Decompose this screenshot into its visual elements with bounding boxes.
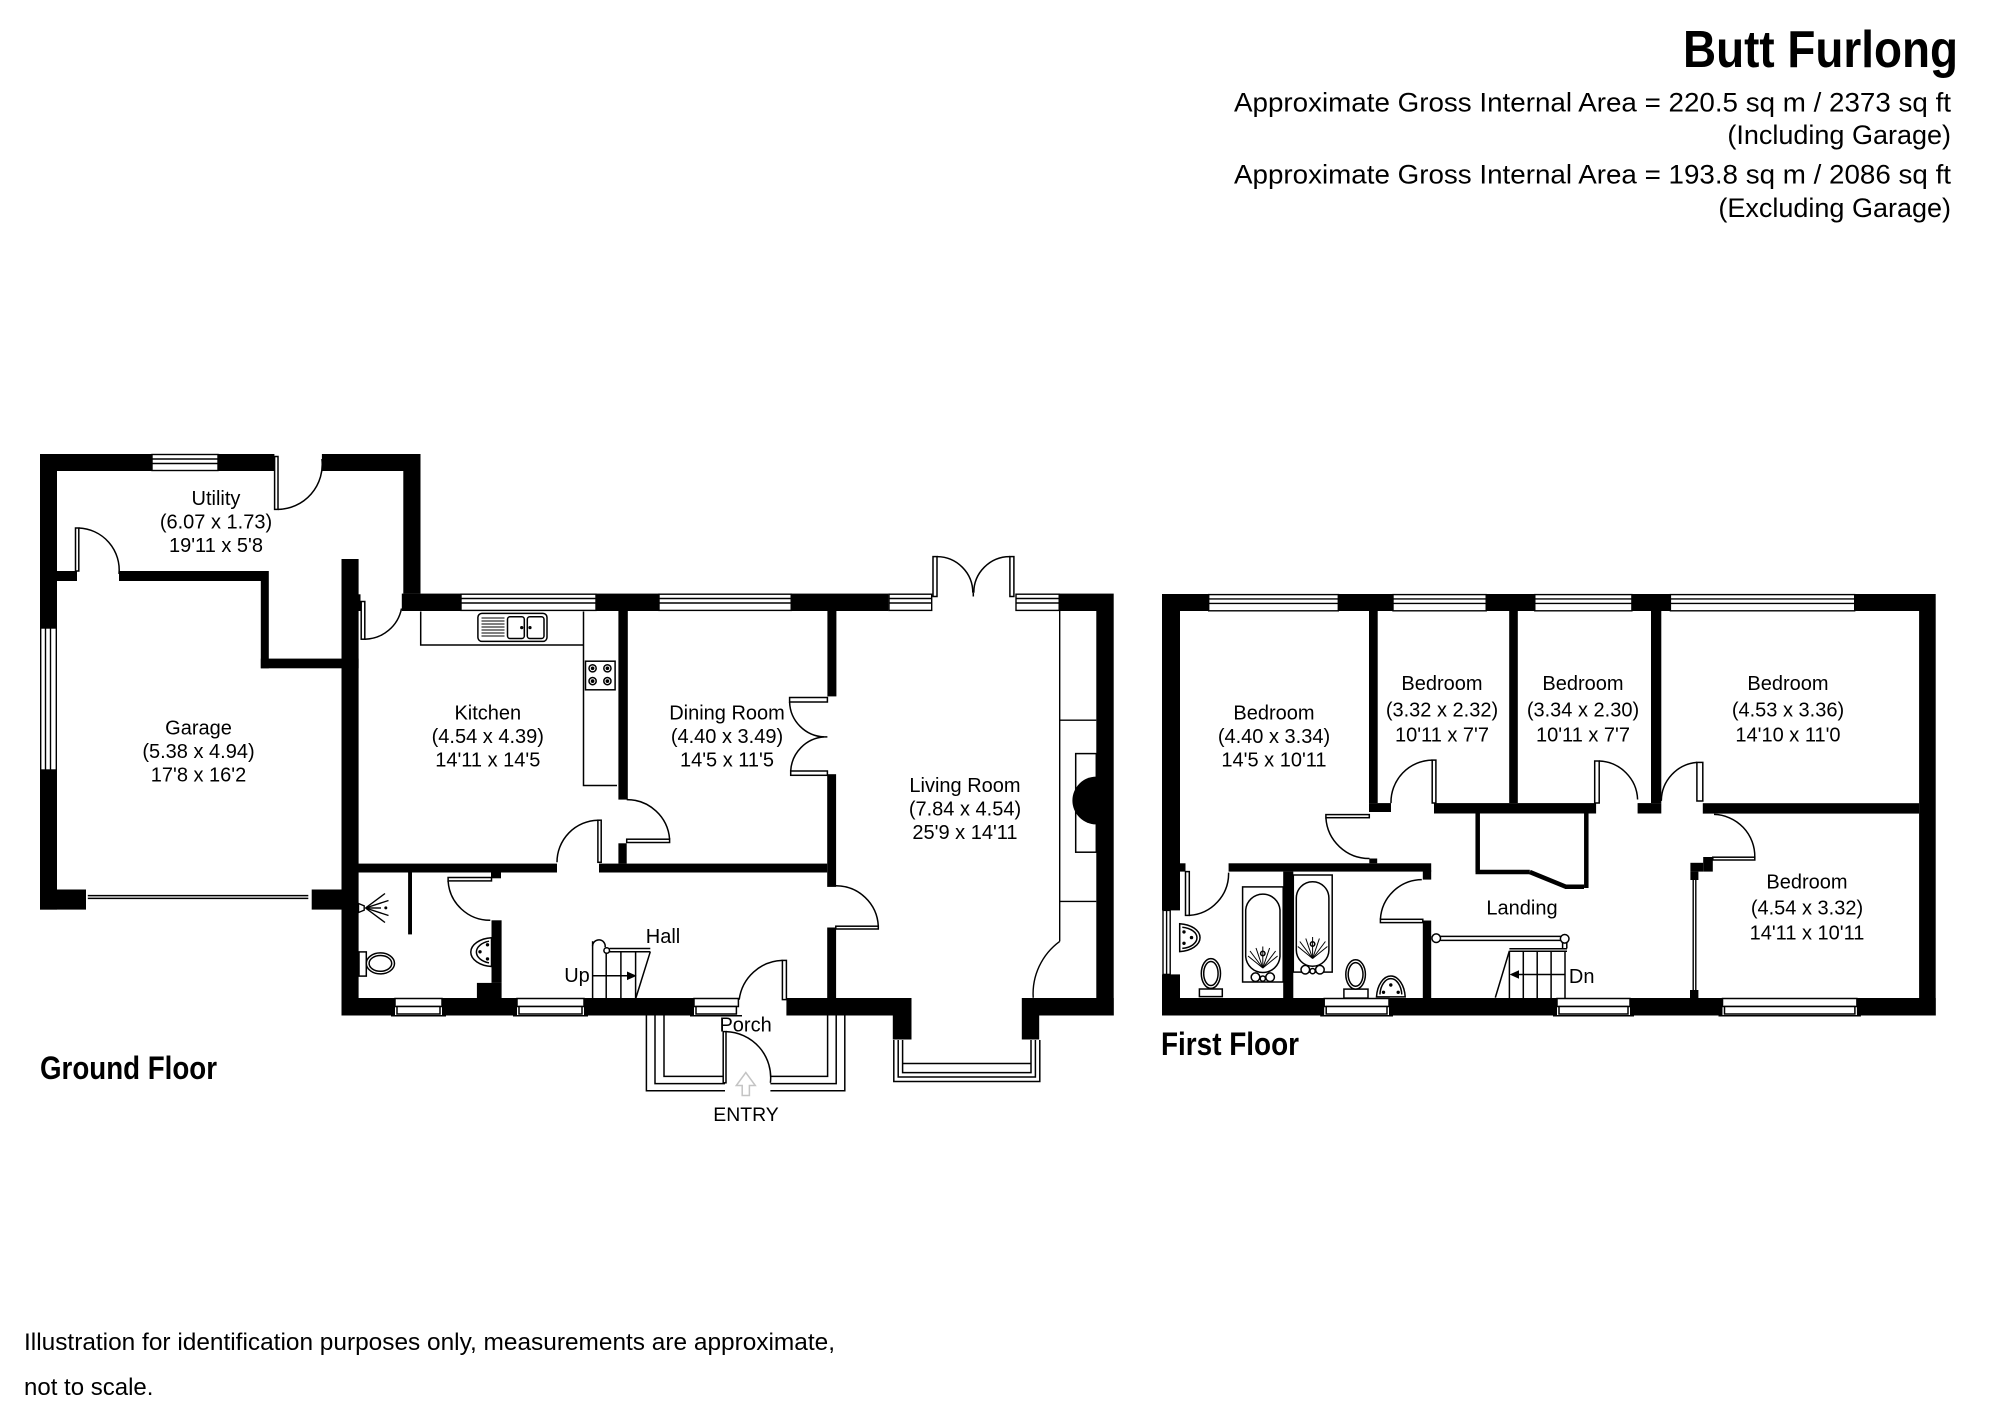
- svg-text:(3.32 x 2.32): (3.32 x 2.32): [1386, 700, 1498, 722]
- svg-text:Bedroom: Bedroom: [1401, 673, 1482, 695]
- svg-text:Porch: Porch: [719, 1015, 771, 1037]
- svg-text:Illustration for identificatio: Illustration for identification purposes…: [24, 1329, 835, 1356]
- svg-text:14'5 x 11'5: 14'5 x 11'5: [680, 749, 774, 771]
- svg-text:(Including Garage): (Including Garage): [1727, 120, 1951, 150]
- svg-text:Dining Room: Dining Room: [669, 702, 785, 724]
- svg-text:not to scale.: not to scale.: [24, 1374, 153, 1401]
- svg-text:(4.40 x 3.34): (4.40 x 3.34): [1218, 726, 1330, 748]
- svg-text:Ground Floor: Ground Floor: [40, 1050, 217, 1086]
- svg-text:19'11 x 5'8: 19'11 x 5'8: [169, 535, 263, 557]
- svg-text:(4.54 x 4.39): (4.54 x 4.39): [432, 726, 544, 748]
- svg-text:Butt Furlong: Butt Furlong: [1683, 21, 1958, 79]
- svg-text:Landing: Landing: [1486, 898, 1557, 920]
- svg-text:(Excluding Garage): (Excluding Garage): [1718, 193, 1951, 223]
- svg-text:Bedroom: Bedroom: [1766, 871, 1847, 893]
- svg-text:(3.34 x 2.30): (3.34 x 2.30): [1527, 700, 1639, 722]
- svg-text:Approximate Gross Internal Are: Approximate Gross Internal Area = 220.5 …: [1234, 88, 1952, 118]
- svg-text:(4.54 x 3.32): (4.54 x 3.32): [1751, 898, 1863, 920]
- svg-text:Utility: Utility: [192, 488, 241, 510]
- svg-text:Living Room: Living Room: [909, 775, 1020, 797]
- svg-text:ENTRY: ENTRY: [713, 1105, 779, 1126]
- svg-text:14'5 x 10'11: 14'5 x 10'11: [1221, 749, 1326, 771]
- svg-text:25'9 x 14'11: 25'9 x 14'11: [912, 822, 1017, 844]
- svg-text:Up: Up: [564, 965, 590, 987]
- svg-text:(5.38 x 4.94): (5.38 x 4.94): [142, 741, 254, 763]
- svg-text:Approximate Gross Internal Are: Approximate Gross Internal Area = 193.8 …: [1234, 160, 1952, 190]
- svg-text:10'11 x 7'7: 10'11 x 7'7: [1536, 725, 1630, 747]
- svg-text:14'10 x 11'0: 14'10 x 11'0: [1735, 725, 1840, 747]
- svg-text:Bedroom: Bedroom: [1747, 673, 1828, 695]
- svg-text:17'8 x 16'2: 17'8 x 16'2: [151, 765, 247, 787]
- svg-text:Garage: Garage: [165, 718, 232, 740]
- svg-text:(4.53 x 3.36): (4.53 x 3.36): [1732, 700, 1844, 722]
- svg-text:(6.07 x 1.73): (6.07 x 1.73): [160, 512, 272, 534]
- svg-text:(7.84 x 4.54): (7.84 x 4.54): [909, 799, 1021, 821]
- svg-text:Kitchen: Kitchen: [454, 702, 521, 724]
- svg-text:14'11 x 10'11: 14'11 x 10'11: [1750, 923, 1865, 945]
- svg-text:Bedroom: Bedroom: [1542, 673, 1623, 695]
- svg-text:Dn: Dn: [1569, 966, 1595, 988]
- svg-text:14'11 x 14'5: 14'11 x 14'5: [435, 749, 540, 771]
- svg-text:10'11 x 7'7: 10'11 x 7'7: [1395, 725, 1489, 747]
- svg-text:(4.40 x 3.49): (4.40 x 3.49): [671, 726, 783, 748]
- svg-text:First Floor: First Floor: [1161, 1026, 1299, 1062]
- svg-text:Bedroom: Bedroom: [1233, 702, 1314, 724]
- svg-text:Hall: Hall: [646, 926, 680, 948]
